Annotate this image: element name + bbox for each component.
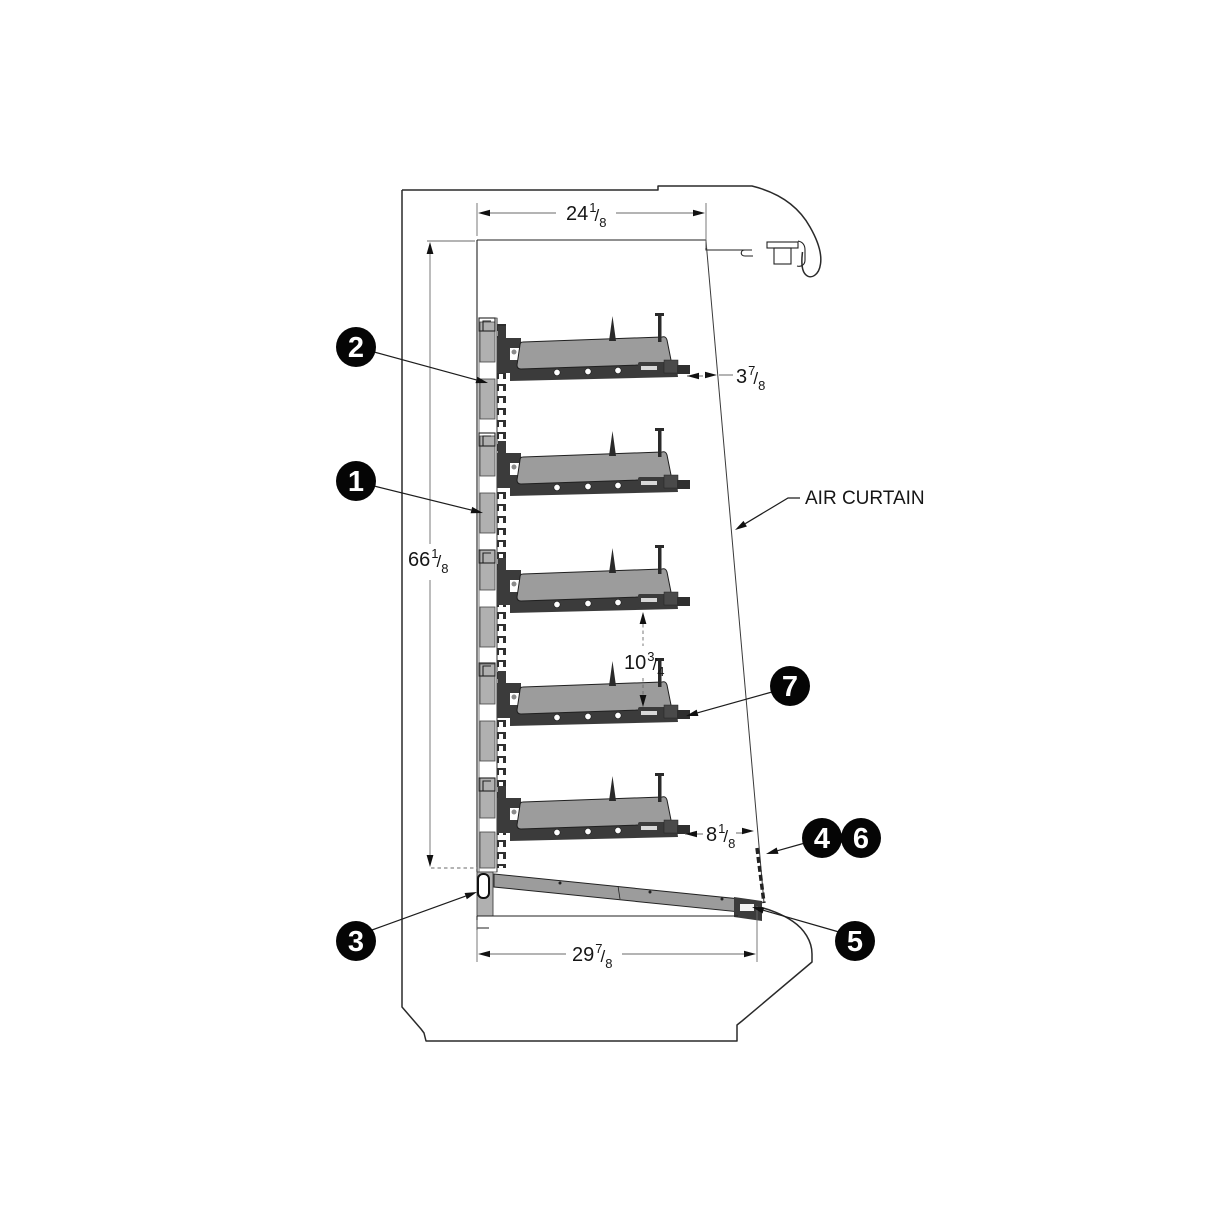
dim-arrow-left: [478, 210, 490, 217]
callout-7: 7: [770, 666, 810, 706]
deck-screw: [649, 891, 652, 894]
leader-4-arrow: [766, 848, 779, 855]
callout-3-number: 3: [348, 926, 364, 958]
dim-base-depth-text: 297/8: [572, 941, 612, 971]
dim-top-depth-text: 241/8: [566, 200, 606, 230]
bottom-deck-assembly: [477, 872, 762, 930]
leader-4: [778, 843, 805, 851]
diagram-canvas: 241/8 661/8 37/8 103/4 81/8 297/8: [0, 0, 1224, 1224]
shelves: [479, 313, 690, 841]
light-clamp-body: [774, 248, 791, 264]
dim-arrow-right: [744, 951, 756, 958]
shelf-5: [479, 773, 690, 841]
leader-3-arrow: [465, 892, 477, 899]
deck-screw: [721, 898, 724, 901]
dim-shelf-to-curtain-bottom: 81/8: [685, 821, 754, 851]
callout-leaders: [372, 352, 839, 932]
dim-shelf-to-curtain-top: 37/8: [687, 363, 765, 393]
shelf-3: [479, 545, 690, 613]
air-curtain-label: AIR CURTAIN: [805, 488, 925, 509]
callout-2-number: 2: [348, 332, 364, 364]
dim-arrow-right: [705, 372, 717, 379]
dim-arrow-right: [742, 828, 754, 835]
dim-shelf-to-curtain-bottom-text: 81/8: [706, 821, 735, 851]
callout-1: 1: [336, 461, 376, 501]
light-clamp-top: [767, 242, 798, 248]
front-grille-slot: [740, 904, 754, 911]
dim-top-depth: 241/8: [477, 200, 706, 248]
air-curtain-line: [706, 241, 764, 903]
callout-3: 3: [336, 921, 376, 961]
leader-1: [374, 486, 471, 510]
callout-4: 4: [802, 818, 842, 858]
air-curtain-label-group: AIR CURTAIN: [735, 488, 925, 530]
bottom-deck-pan: [494, 874, 750, 913]
dim-arrow-up: [640, 612, 647, 624]
callout-4-number: 4: [814, 823, 830, 855]
dim-arrow-up: [427, 242, 434, 254]
dim-arrow-down: [427, 855, 434, 867]
callout-6-number: 6: [853, 823, 869, 855]
air-curtain-leader-arrow: [735, 521, 747, 530]
leader-7: [698, 692, 772, 713]
canopy-hook: [741, 250, 753, 256]
diagram-page: 241/8 661/8 37/8 103/4 81/8 297/8: [0, 0, 1224, 1224]
air-curtain-bottom-honeycomb: [757, 848, 764, 903]
dim-interior-height: 661/8: [404, 241, 477, 868]
dim-shelf-clearance-text: 103/4: [624, 649, 664, 679]
callout-5-number: 5: [847, 926, 863, 958]
canopy-underside: [706, 240, 752, 250]
deck-screw: [559, 882, 562, 885]
callout-1-number: 1: [348, 466, 364, 498]
callout-2: 2: [336, 327, 376, 367]
shelf-2: [479, 428, 690, 496]
callout-balloons: 2 1 3 7 4 6 5: [336, 327, 881, 961]
dim-arrow-right: [693, 210, 705, 217]
dim-arrow-left: [478, 951, 490, 958]
rear-drain-slot: [478, 874, 489, 898]
air-curtain: [706, 241, 764, 903]
leader-3: [372, 896, 466, 930]
leader-2: [374, 352, 476, 380]
callout-7-number: 7: [782, 671, 798, 703]
base-foot: [477, 916, 489, 930]
shelf-1: [479, 313, 690, 381]
air-curtain-leader: [745, 498, 800, 524]
interior-liner: [477, 240, 805, 872]
callout-5: 5: [835, 921, 875, 961]
canopy-outline: [402, 186, 821, 277]
dim-shelf-to-curtain-top-text: 37/8: [736, 363, 765, 393]
callout-6: 6: [841, 818, 881, 858]
